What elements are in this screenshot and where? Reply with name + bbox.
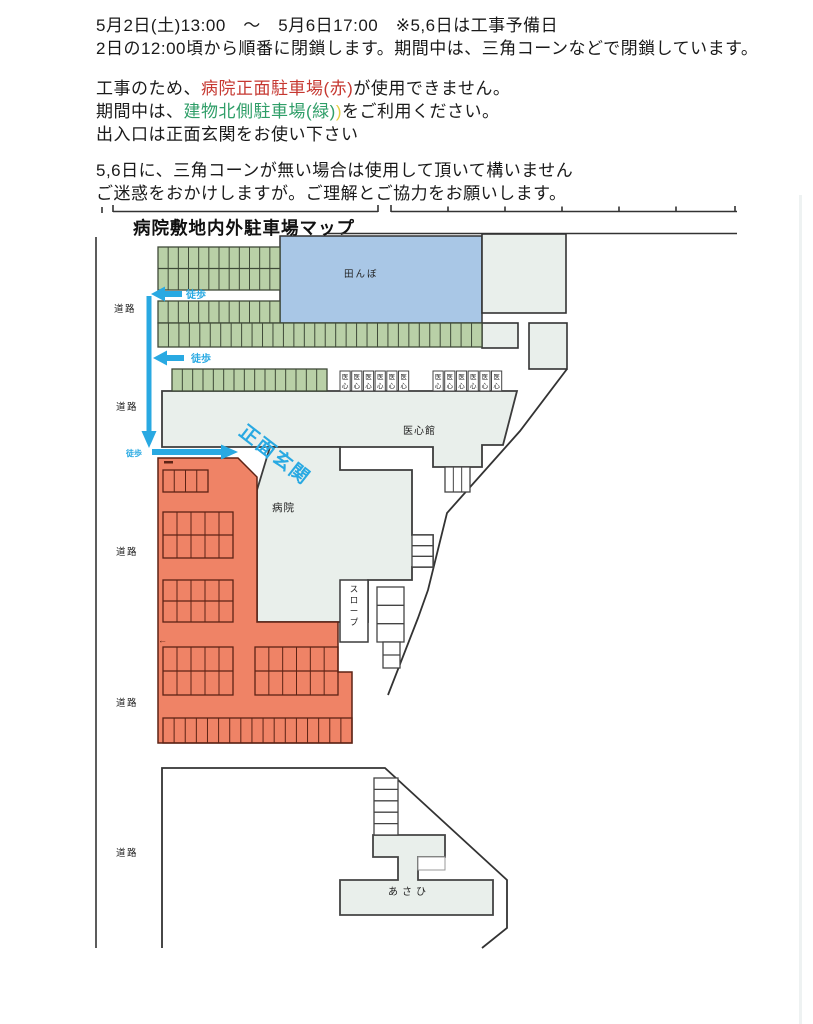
map-title: 病院敷地内外駐車場マップ [133, 218, 355, 238]
site-map: 病院敷地内外駐車場マップ ← [0, 0, 813, 1024]
north-building-large [482, 234, 566, 313]
ishin-stall-box: 医心 [387, 371, 397, 391]
scanned-notice-page: 5月2日(土)13:00 ～ 5月6日17:00 ※5,6日は工事予備日 2日の… [0, 0, 813, 1024]
ishin-stall-box: 医心 [492, 371, 502, 391]
asahi-step-box [418, 857, 445, 870]
ishin-stall-box: 医心 [456, 371, 466, 391]
ishin-stall-box: 医心 [399, 371, 409, 391]
slope-steps-upper [377, 587, 404, 642]
asahi-stairs [374, 778, 398, 835]
road-label-4: 道路 [116, 697, 138, 709]
ishin-stall-box: 医心 [363, 371, 373, 391]
ishinkan-label: 医心館 [403, 424, 436, 437]
ishin-stall-box: 医心 [352, 371, 362, 391]
ishin-stall-box: 医心 [433, 371, 443, 391]
rice-field [280, 236, 482, 323]
walk-label-3: 徒歩 [125, 448, 142, 458]
north-building-small-1 [482, 323, 518, 348]
road-label-2: 道路 [116, 401, 138, 413]
asahi-label: あさひ [388, 886, 430, 898]
red-lot-arrow-mark: ← [158, 635, 167, 645]
ishin-stall-box: 医心 [445, 371, 455, 391]
boundary-tickline-1 [113, 205, 378, 212]
ishin-stall-box: 医心 [340, 371, 350, 391]
hospital-stairs [412, 535, 433, 567]
ishin-stall-box: 医心 [375, 371, 385, 391]
north-building-small-2 [529, 323, 567, 369]
boundary-tickline-2 [391, 205, 737, 212]
green-lot-c [172, 369, 327, 391]
hospital-label: 病院 [272, 501, 295, 514]
green-lot-b2 [158, 323, 482, 347]
green-lot-b1 [158, 301, 280, 323]
ishin-stall-box: 医心 [468, 371, 478, 391]
boundary-bottom-section [162, 768, 507, 948]
red-lot-dash-mark [164, 461, 173, 464]
rice-field-label: 田んぼ [344, 269, 379, 280]
walk-label-2: 徒歩 [190, 352, 211, 365]
walk-arrow-2-head [153, 351, 167, 366]
walk-route-down-arrowhead [142, 431, 157, 448]
road-label-3: 道路 [116, 546, 138, 558]
walk-label-1: 徒歩 [185, 288, 206, 301]
road-label-5: 道路 [116, 847, 138, 859]
vertical-label: スロープ [350, 584, 359, 627]
road-label-1: 道路 [114, 303, 136, 315]
scan-edge-artifact [799, 195, 802, 1024]
north-buildings [482, 234, 567, 369]
ishinkan-step-box [445, 467, 470, 492]
ishin-stall-box: 医心 [480, 371, 490, 391]
green-lot-a [158, 247, 280, 290]
slope-steps-lower [383, 642, 400, 668]
